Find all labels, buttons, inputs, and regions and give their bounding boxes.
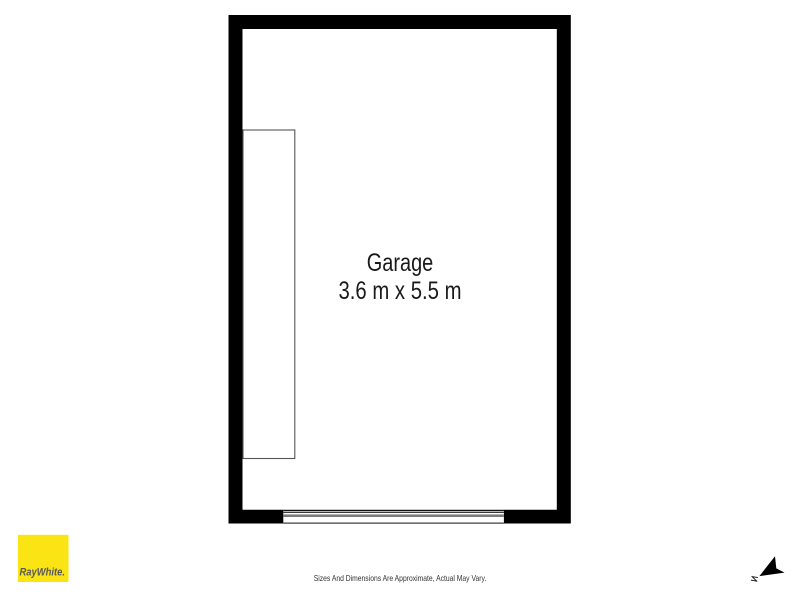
svg-text:Garage: Garage (367, 249, 434, 277)
svg-text:Sizes And Dimensions Are Appro: Sizes And Dimensions Are Approximate, Ac… (314, 573, 487, 583)
svg-text:RayWhite.: RayWhite. (20, 567, 66, 579)
svg-text:3.6 m x 5.5 m: 3.6 m x 5.5 m (339, 277, 462, 305)
